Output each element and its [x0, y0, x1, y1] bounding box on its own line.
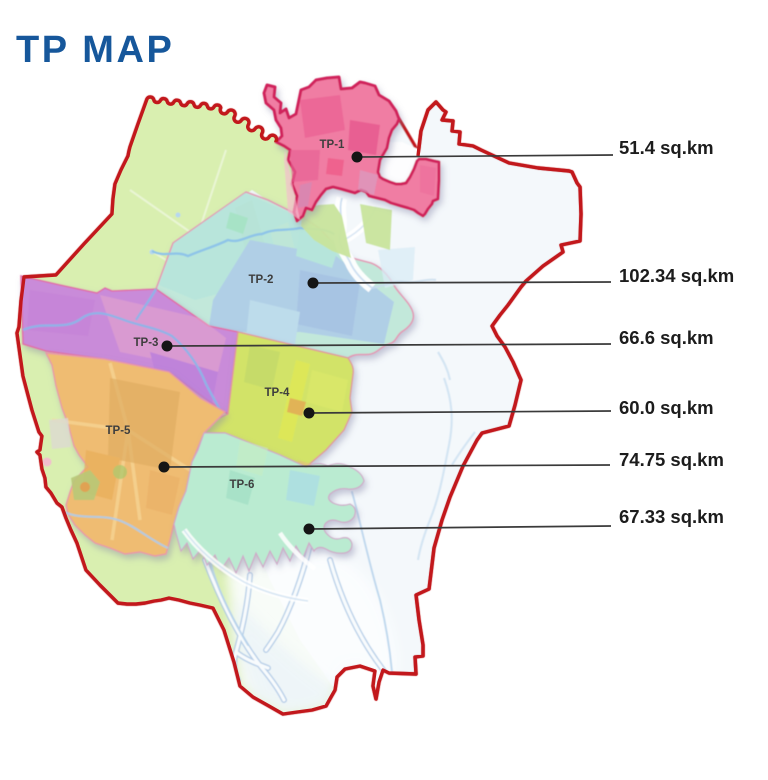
svg-text:51.4 sq.km: 51.4 sq.km: [619, 137, 714, 158]
svg-text:60.0 sq.km: 60.0 sq.km: [619, 397, 714, 418]
svg-text:TP-5: TP-5: [106, 425, 132, 437]
svg-text:102.34 sq.km: 102.34 sq.km: [619, 265, 734, 286]
svg-text:TP-2: TP-2: [249, 274, 274, 286]
svg-text:74.75 sq.km: 74.75 sq.km: [619, 449, 724, 470]
svg-text:TP-3: TP-3: [134, 337, 159, 349]
svg-text:TP-1: TP-1: [320, 139, 346, 151]
svg-text:66.6 sq.km: 66.6 sq.km: [619, 327, 714, 348]
svg-text:TP-4: TP-4: [265, 387, 291, 399]
svg-text:TP-6: TP-6: [230, 479, 255, 491]
svg-text:67.33 sq.km: 67.33 sq.km: [619, 506, 724, 527]
svg-text:TP MAP: TP MAP: [16, 29, 174, 71]
